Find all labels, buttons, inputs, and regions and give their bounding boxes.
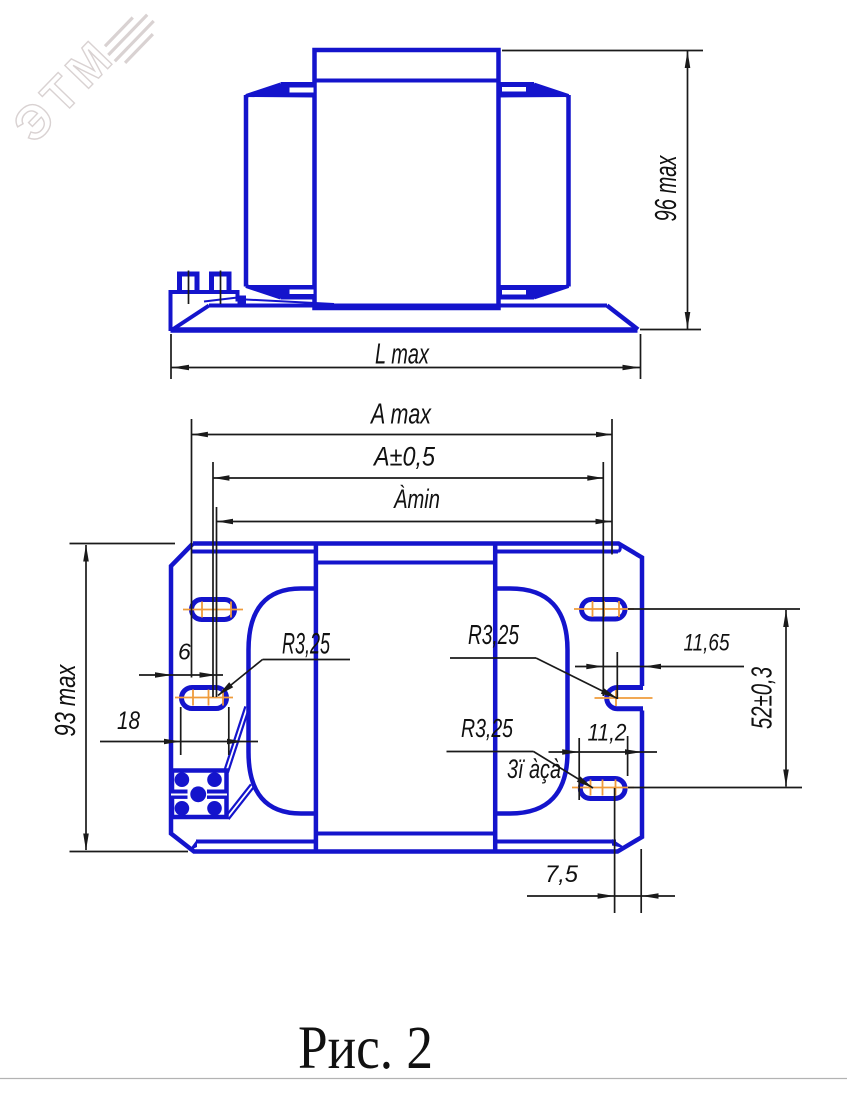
- svg-text:96 max: 96 max: [648, 155, 683, 222]
- svg-text:11,2: 11,2: [588, 720, 627, 747]
- svg-text:Àmin: Àmin: [393, 484, 440, 514]
- svg-text:7,5: 7,5: [545, 861, 579, 888]
- svg-text:18: 18: [117, 707, 140, 735]
- svg-text:R3,25: R3,25: [468, 619, 519, 650]
- svg-text:3ï àçà: 3ï àçà: [507, 754, 561, 784]
- svg-text:A max: A max: [370, 399, 433, 431]
- svg-text:11,65: 11,65: [684, 630, 731, 657]
- svg-text:R3,25: R3,25: [461, 713, 513, 743]
- svg-text:6: 6: [178, 639, 191, 665]
- svg-text:93 max: 93 max: [50, 663, 82, 736]
- svg-text:52±0,3: 52±0,3: [747, 667, 779, 729]
- svg-text:Рис. 2: Рис. 2: [298, 1015, 433, 1082]
- svg-text:A±0,5: A±0,5: [372, 442, 436, 472]
- svg-text:L max: L max: [375, 339, 430, 371]
- svg-text:R3,25: R3,25: [282, 628, 330, 661]
